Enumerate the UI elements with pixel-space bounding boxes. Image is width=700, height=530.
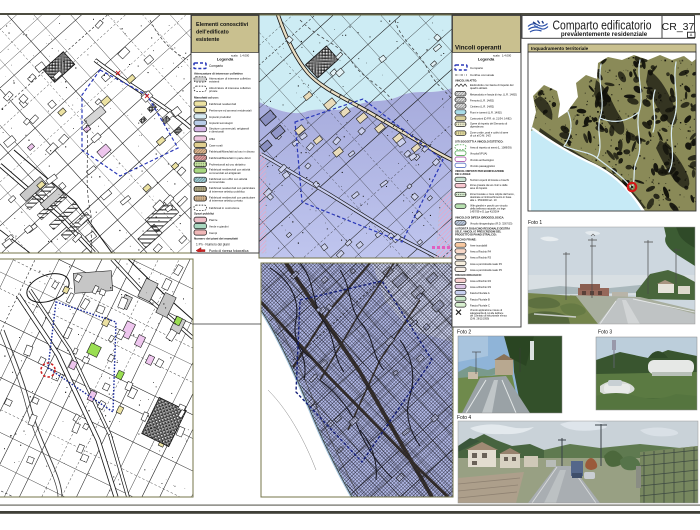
svg-text:quadro abitato: quadro abitato <box>470 86 488 90</box>
svg-text:Comparto: Comparto <box>470 66 484 70</box>
svg-text:DEI LUOGHI:: DEI LUOGHI: <box>455 172 471 176</box>
svg-text:CR_37: CR_37 <box>662 21 695 33</box>
svg-text:Ferrovia (L.R. 14/82): Ferrovia (L.R. 14/82) <box>470 98 494 102</box>
svg-text:private: private <box>209 89 218 93</box>
svg-text:Attrezzature di interesse coll: Attrezzature di interesse collettivo <box>194 71 243 75</box>
svg-text:Verde e giardini: Verde e giardini <box>209 225 229 229</box>
svg-text:Fascia Fluviale A: Fascia Fluviale A <box>470 291 490 295</box>
svg-text:Foto 2: Foto 2 <box>457 330 471 336</box>
svg-text:Area a Rischio R3: Area a Rischio R3 <box>470 256 491 260</box>
svg-text:Fabbricati residenziali: Fabbricati residenziali <box>209 102 236 106</box>
svg-text:Professionali ad uso abitativo: Professionali ad uso abitativo <box>209 163 246 167</box>
svg-text:aree di rispetto: aree di rispetto <box>470 186 488 190</box>
svg-text:1497/39 e D.Lgs 42/2004: 1497/39 e D.Lgs 42/2004 <box>470 210 500 214</box>
svg-text:Fascia Fluviale B: Fascia Fluviale B <box>470 297 490 301</box>
svg-text:Vincoli operanti: Vincoli operanti <box>455 45 502 52</box>
svg-text:Fascia Fluviale C: Fascia Fluviale C <box>470 303 490 307</box>
svg-text:Elementi conoscitivi: Elementi conoscitivi <box>196 22 249 28</box>
svg-text:Aree inondabili: Aree inondabili <box>470 244 488 248</box>
svg-text:Foto 1: Foto 1 <box>528 220 542 226</box>
svg-text:Comparto: Comparto <box>209 64 223 68</box>
svg-text:commerciale: commerciale <box>209 180 225 184</box>
svg-text:Foto 3: Foto 3 <box>598 330 612 336</box>
svg-text:Cimitero (L.R. 14/82): Cimitero (L.R. 14/82) <box>470 105 494 109</box>
svg-text:(D.M. 26/11/1959): (D.M. 26/11/1959) <box>470 318 489 321</box>
svg-text:Campi: Campi <box>209 231 217 235</box>
svg-text:Costruzioni (D.P.R. dt. 21/34,: Costruzioni (D.P.R. dt. 21/34, 14/82) <box>470 117 512 121</box>
svg-text:Legenda: Legenda <box>217 57 234 62</box>
svg-text:Fiumi e torrenti (L.R. 14/82): Fiumi e torrenti (L.R. 14/82) <box>470 111 502 115</box>
svg-text:VINCOLI IN ATTO:: VINCOLI IN ATTO: <box>455 78 477 82</box>
svg-text:scala 1:4.000: scala 1:4.000 <box>493 54 512 58</box>
svg-text:Metanodotto e fascia di risp.: Metanodotto e fascia di risp. (L.R. 14/8… <box>470 92 517 96</box>
svg-text:dell'edificato: dell'edificato <box>196 30 229 36</box>
svg-text:Spazi pubblici: Spazi pubblici <box>194 212 214 216</box>
svg-text:Foto 4: Foto 4 <box>457 415 471 421</box>
svg-text:scala 1:4.000: scala 1:4.000 <box>231 54 250 58</box>
svg-text:Vincolo archeologico: Vincolo archeologico <box>470 158 494 162</box>
svg-text:esistente: esistente <box>196 37 219 43</box>
svg-text:Case rurali: Case rurali <box>209 143 223 147</box>
svg-text:A: A <box>690 33 693 37</box>
svg-text:Vincolo paesaggistico: Vincolo paesaggistico <box>470 164 496 168</box>
svg-text:Uffici: Uffici <box>209 137 216 141</box>
svg-text:PROGETTO DI PIANO STRALCIO:: PROGETTO DI PIANO STRALCIO: <box>455 233 497 237</box>
svg-text:e direzionali: e direzionali <box>209 130 224 134</box>
svg-text:Inquadramento territoriale: Inquadramento territoriale <box>531 46 589 51</box>
svg-text:Impianti produttivi: Impianti produttivi <box>209 115 231 119</box>
svg-text:di cui al D.M. 14/2: di cui al D.M. 14/2 <box>470 134 491 138</box>
svg-text:Manufatti ad uso:: Manufatti ad uso: <box>194 96 219 100</box>
svg-text:Vincolo(VPUA): Vincolo(VPUA) <box>470 152 487 156</box>
svg-text:Pertinenze ed annessi residenz: Pertinenze ed annessi residenziali <box>209 108 252 112</box>
svg-text:Area a Rischio R4: Area a Rischio R4 <box>470 250 491 254</box>
svg-text:esistenti: esistenti <box>209 80 220 84</box>
svg-text:SITI SOGGETTI A VINCOLO ESTETI: SITI SOGGETTI A VINCOLO ESTETICO: <box>455 140 504 144</box>
svg-text:di interesse artistico privato: di interesse artistico privato <box>209 199 243 203</box>
svg-text:Numero dei piani dei manufatti: Numero dei piani dei manufatti <box>194 237 238 241</box>
svg-text:Confine comunale: Confine comunale <box>470 73 495 77</box>
svg-text:di interesse artistico pubblic: di interesse artistico pubblico <box>209 189 245 193</box>
svg-text:Fabbricati/Manufatti in parte: Fabbricati/Manufatti in parte diruti <box>209 156 251 160</box>
svg-text:Vincolo idrogeologico (R.D. 32: Vincolo idrogeologico (R.D. 3267/23) <box>470 221 512 225</box>
svg-text:Area a Rischio R4: Area a Rischio R4 <box>470 279 491 283</box>
svg-text:Fabbricati/Manufatti ad uso in: Fabbricati/Manufatti ad uso in disuso <box>209 150 255 154</box>
svg-text:Area a pericolosità reale P4: Area a pericolosità reale P4 <box>470 262 502 266</box>
svg-text:RISCHIO FRANE:: RISCHIO FRANE: <box>455 238 476 242</box>
svg-text:Piazze: Piazze <box>209 218 218 222</box>
svg-text:Area di rispetto ai sensi (L.: Area di rispetto ai sensi (L. 1089/39) <box>470 146 512 150</box>
svg-text:Area a pericolosità reale P3: Area a pericolosità reale P3 <box>470 268 502 272</box>
svg-text:commerciali ed artigianali: commerciali ed artigianali <box>209 171 241 175</box>
svg-text:Area a Rischio R3: Area a Rischio R3 <box>470 285 491 289</box>
svg-text:dipendenza: dipendenza <box>470 125 484 129</box>
svg-text:Fabbricati in costruzione: Fabbricati in costruzione <box>209 206 240 210</box>
svg-text:prevalentemente residenziale: prevalentemente residenziale <box>561 31 648 38</box>
svg-text:Impianti tecnologici: Impianti tecnologici <box>209 121 233 125</box>
svg-text:Legenda: Legenda <box>478 57 495 62</box>
svg-text:alla L. 353/2000 art. 10: alla L. 353/2000 art. 10 <box>470 198 497 202</box>
svg-text:1 Pn - Numero dei piani: 1 Pn - Numero dei piani <box>196 243 230 247</box>
svg-text:VINCOLO DI DIFESA IDROGEOLOGIC: VINCOLO DI DIFESA IDROGEOLOGICA: <box>455 215 504 219</box>
svg-text:Territori coperti di foreste e: Territori coperti di foreste e boschi <box>470 178 509 182</box>
svg-text:RISCHIO IDRAULICO:: RISCHIO IDRAULICO: <box>455 273 482 277</box>
